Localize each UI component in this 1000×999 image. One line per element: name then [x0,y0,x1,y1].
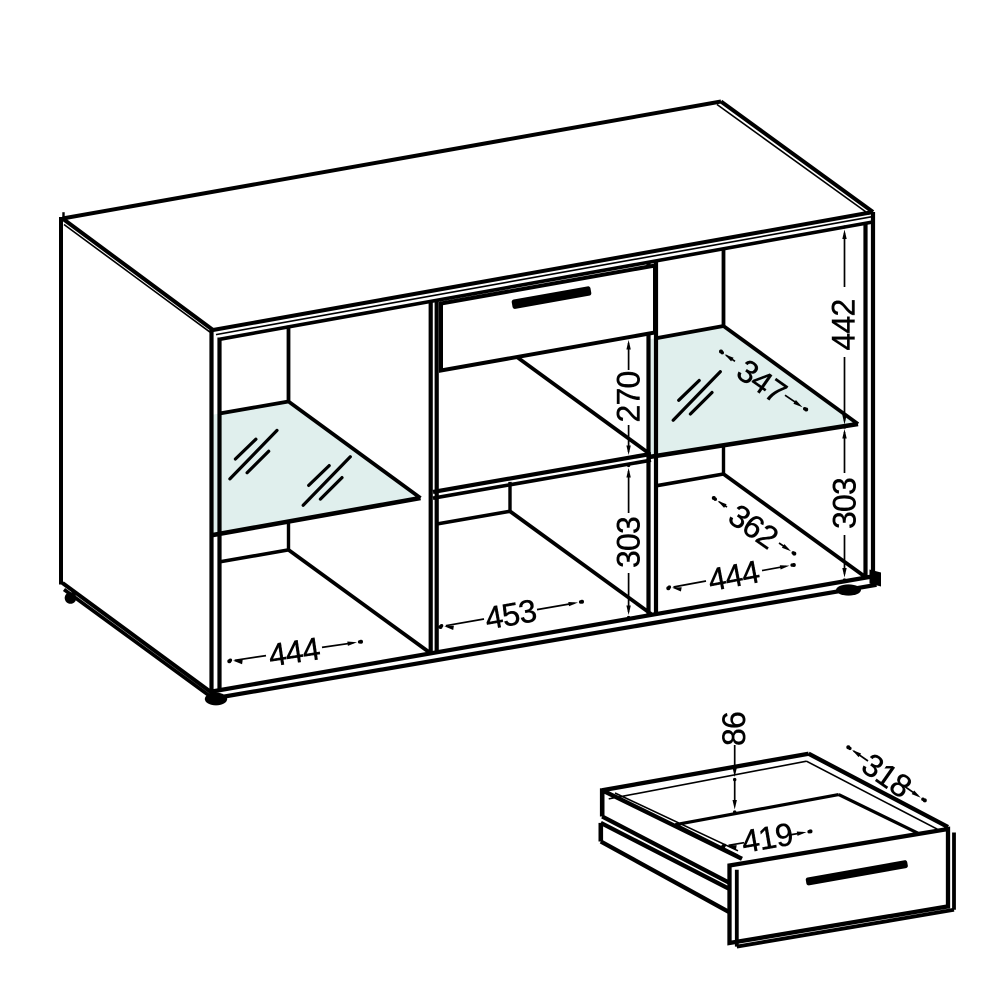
svg-text:318: 318 [855,746,917,805]
svg-text:270: 270 [611,372,647,423]
svg-text:444: 444 [705,553,762,598]
svg-text:419: 419 [739,816,795,860]
svg-text:444: 444 [266,630,322,673]
svg-text:362: 362 [722,497,784,556]
svg-text:303: 303 [611,517,647,568]
svg-text:303: 303 [827,478,863,529]
svg-text:453: 453 [482,592,538,636]
svg-text:442: 442 [826,300,862,351]
svg-text:86: 86 [716,712,752,746]
